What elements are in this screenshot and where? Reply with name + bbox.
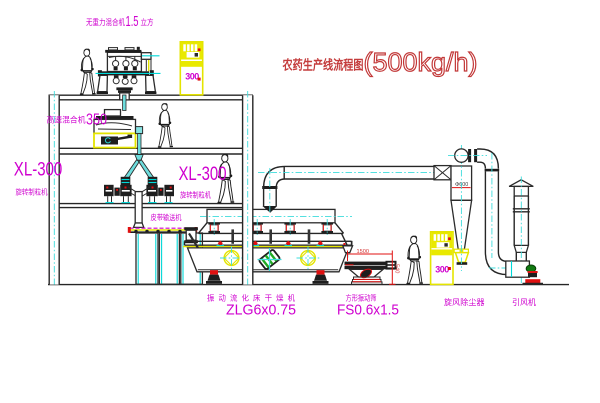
svg-text:XL-300: XL-300 (179, 163, 227, 185)
svg-text:XL-300: XL-300 (14, 159, 63, 181)
svg-text:(500kg/h): (500kg/h) (364, 47, 478, 77)
svg-text:旋转制粒机: 旋转制粒机 (16, 187, 48, 197)
svg-text:1.5: 1.5 (126, 13, 139, 30)
svg-text:方形振动筛: 方形振动筛 (346, 294, 377, 303)
svg-text:农药生产线流程图: 农药生产线流程图 (282, 58, 364, 73)
svg-text:300: 300 (185, 72, 199, 82)
svg-text:无重力混合机: 无重力混合机 (86, 17, 126, 27)
svg-text:皮带输送机: 皮带输送机 (151, 212, 182, 222)
svg-text:ZLG6x0.75: ZLG6x0.75 (226, 303, 296, 319)
svg-text:300: 300 (435, 265, 449, 275)
svg-text:旋风除尘器: 旋风除尘器 (444, 297, 485, 307)
svg-text:350: 350 (86, 112, 107, 129)
svg-text:1500: 1500 (357, 249, 369, 255)
svg-text:FS0.6x1.5: FS0.6x1.5 (337, 303, 399, 319)
svg-text:高速混合机: 高速混合机 (47, 115, 87, 125)
svg-text:立方: 立方 (141, 17, 154, 27)
svg-text:引风机: 引风机 (512, 297, 536, 307)
svg-text:旋转制粒机: 旋转制粒机 (180, 190, 211, 200)
svg-text:540: 540 (394, 264, 400, 273)
